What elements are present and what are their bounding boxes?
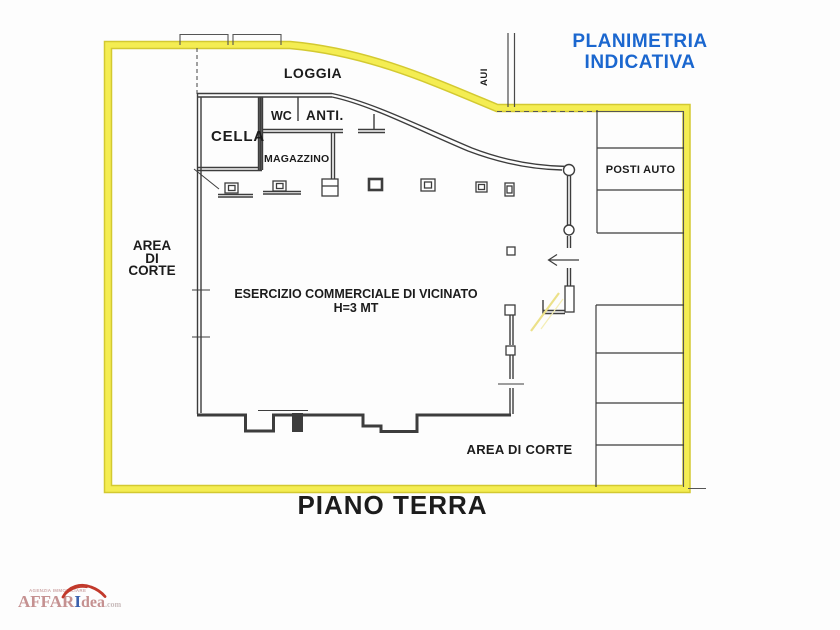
area-label-corte-left: AREA DI CORTE [110,240,194,278]
entrance-arrow [549,255,580,266]
parking-label: POSTI AUTO [597,164,684,176]
main-room-height: H=3 MT [230,302,482,316]
area-label-corte-bottom: AREA DI CORTE [452,442,587,457]
door-swing-highlight [531,293,563,331]
drawing-title: PLANIMETRIA INDICATIVA [555,31,725,73]
room-label-loggia: LOGGIA [268,65,358,81]
drawing-title-line1: PLANIMETRIA [555,31,725,52]
main-room-label: ESERCIZIO COMMERCIALE DI VICINATO H=3 MT [230,288,482,315]
round-columns [564,165,575,236]
swoosh-icon [60,581,122,601]
pillar-row [225,179,574,355]
bottom-wall-tab [292,413,303,432]
room-label-aui: AUI [479,50,492,86]
room-label-anti: ANTI. [306,108,344,123]
drawing-title-line2: INDICATIVA [555,52,725,73]
floor-title: PIANO TERRA [245,490,540,521]
room-label-cella: CELLA [203,128,273,145]
agency-watermark: AGENZIA IMMOBILIARE AFFARIdea.com [18,582,148,624]
aui-shaft-lines [508,33,515,107]
brand-tld: .com [105,600,121,609]
floor-plan-image: PLANIMETRIA INDICATIVA LOGGIA AUI CELLA … [0,0,840,630]
room-label-magazzino: MAGAZZINO [264,153,329,165]
floor-plan-linework [0,0,840,630]
room-label-wc: WC [271,109,292,123]
main-room-label-text: ESERCIZIO COMMERCIALE DI VICINATO [230,288,482,302]
area-corte-left-line3: CORTE [110,265,194,278]
